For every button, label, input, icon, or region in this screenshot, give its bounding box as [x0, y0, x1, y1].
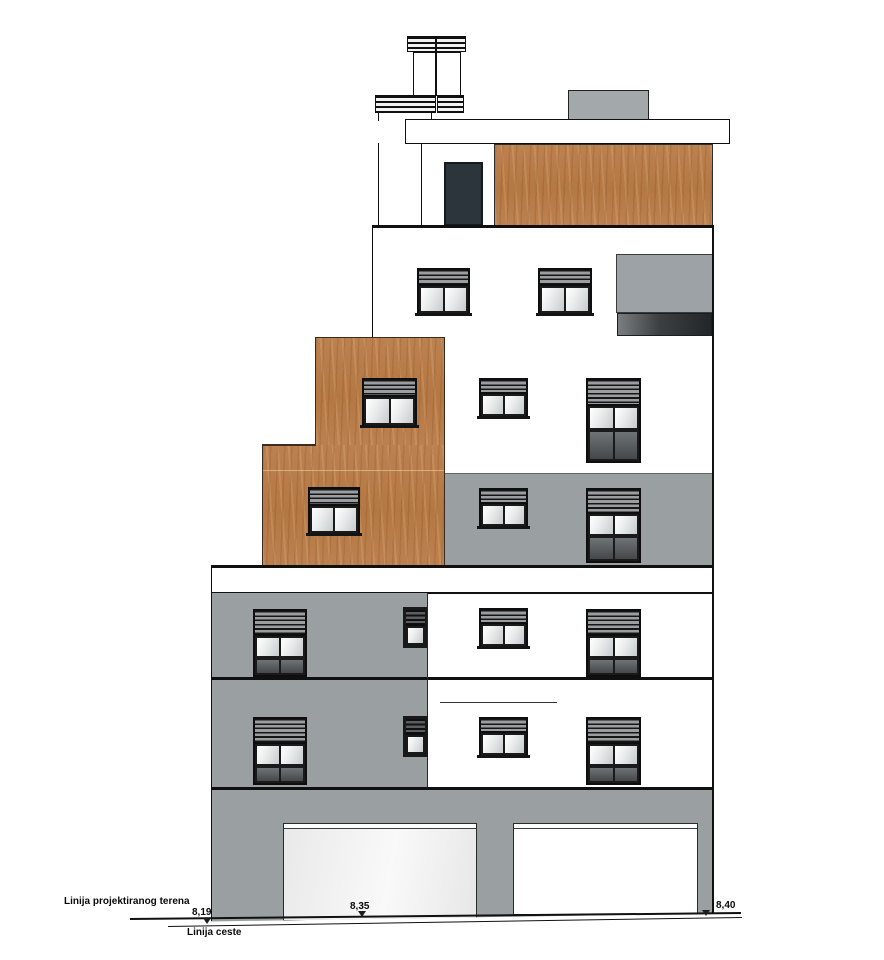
chimney-cap-lower-right [437, 95, 464, 113]
facade-dark-strip [617, 313, 712, 336]
chimney-cap-lower-left [375, 95, 436, 113]
slab-line-upper [211, 565, 714, 568]
window-floor6-balcony-right [586, 717, 641, 785]
window-floor5-balcony-left [253, 609, 307, 677]
road-line-label: Linija ceste [187, 927, 241, 938]
terrain-line-label: Linija projektiranog terena [64, 896, 190, 907]
window-floor6-balcony-left [253, 717, 307, 785]
gray-white-boundary-line [427, 593, 428, 787]
floor2-left-edge [372, 226, 373, 337]
building-elevation-drawing: Linija projektiranog terena 8,19 Linija … [0, 0, 884, 960]
ground-floor-wall [211, 790, 713, 922]
penthouse-door [444, 162, 483, 226]
garage-opening-right [513, 823, 698, 915]
balcony-edge-line [440, 702, 557, 703]
window-floor6-small [479, 717, 528, 757]
chimney-cap-top-left [407, 36, 436, 52]
window-floor4-tall [586, 488, 641, 563]
window-floor2-right [538, 268, 592, 315]
floor5-gray-wall [211, 593, 427, 677]
chimney-stack-right [436, 52, 461, 96]
elevation-label-left: 8,19 [192, 907, 211, 918]
wood-step-edge [262, 444, 316, 446]
window-floor2-left [417, 268, 470, 315]
penthouse-wood-cladding [494, 144, 713, 226]
level-marker-icon [203, 918, 211, 924]
floor6-gray-wall [211, 703, 427, 788]
level-marker-icon [702, 910, 710, 916]
floor6-floor-line [211, 787, 714, 790]
wood-seam-line [263, 470, 444, 471]
facade-gray-panel [616, 254, 713, 313]
window-floor4-small [479, 488, 528, 528]
window-wood-lower [308, 487, 360, 535]
roof-parapet-band [405, 119, 730, 144]
building-left-edge [211, 567, 212, 921]
building-right-edge [712, 226, 714, 914]
window-floor3-small [479, 378, 528, 418]
window-floor5-small [479, 608, 528, 648]
window-floor5-narrow [403, 607, 428, 648]
window-floor6-narrow [403, 716, 428, 757]
chimney-shaft-lower [378, 143, 422, 226]
window-wood-upper [362, 378, 417, 427]
window-floor3-tall [586, 378, 641, 463]
garage-door-left [283, 823, 477, 921]
chimney-stack-left [413, 52, 436, 96]
elevation-label-right: 8,40 [716, 900, 735, 911]
level-marker-icon [358, 911, 366, 917]
interfloor-gray-band [211, 680, 427, 703]
roof-equipment-box [568, 90, 649, 121]
penthouse-floor-line [372, 225, 714, 228]
chimney-cap-top-right [436, 36, 466, 52]
window-floor5-balcony-right [586, 609, 641, 677]
